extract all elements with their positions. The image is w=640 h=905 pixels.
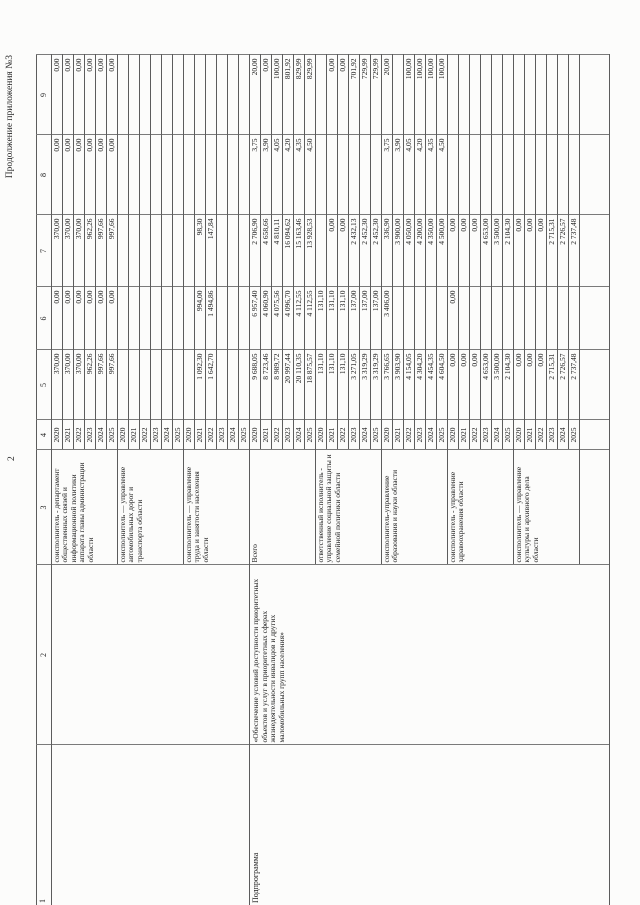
value-cell: 3,75: [250, 135, 261, 215]
value-cell: [316, 135, 327, 215]
value-cell: 0,00: [107, 135, 118, 215]
value-cell: 0,00: [63, 55, 74, 135]
year-cell: 2022: [206, 420, 217, 450]
year-cell: 2024: [426, 420, 437, 450]
budget-table: 123456789соисполнитель - департамент общ…: [36, 55, 610, 905]
value-cell: [503, 135, 514, 215]
column-number-cell: 6: [37, 287, 52, 350]
value-cell: 3 766,65: [382, 350, 393, 420]
value-cell: 0,00: [85, 287, 96, 350]
value-cell: 0,00: [514, 215, 525, 287]
year-row: соисполнитель - департамент общественных…: [52, 55, 63, 905]
value-cell: 4,20: [283, 135, 294, 215]
value-cell: [217, 55, 228, 135]
value-cell: [514, 135, 525, 215]
value-cell: 131,10: [338, 350, 349, 420]
value-cell: 997,66: [96, 215, 107, 287]
value-cell: 0,00: [96, 287, 107, 350]
year-cell: 2023: [85, 420, 96, 450]
value-cell: 829,99: [305, 55, 316, 135]
value-cell: [118, 350, 129, 420]
value-cell: [558, 135, 569, 215]
value-cell: 4 112,55: [294, 287, 305, 350]
value-cell: 962,26: [85, 350, 96, 420]
value-cell: 20,00: [382, 55, 393, 135]
year-cell: 2024: [162, 420, 173, 450]
value-cell: [140, 350, 151, 420]
year-cell: 2022: [404, 420, 415, 450]
value-cell: 0,00: [525, 350, 536, 420]
value-cell: [316, 55, 327, 135]
value-cell: [536, 287, 547, 350]
value-cell: 0,00: [96, 135, 107, 215]
value-cell: 3 319,29: [371, 350, 382, 420]
value-cell: [547, 135, 558, 215]
value-cell: 20,00: [250, 55, 261, 135]
value-cell: [492, 55, 503, 135]
year-cell: 2025: [503, 420, 514, 450]
value-cell: 3,75: [382, 135, 393, 215]
value-cell: 997,66: [96, 350, 107, 420]
value-cell: 336,90: [382, 215, 393, 287]
value-cell: [151, 215, 162, 287]
value-cell: [536, 55, 547, 135]
value-cell: 131,10: [316, 287, 327, 350]
value-cell: [151, 287, 162, 350]
value-cell: 3 319,29: [360, 350, 371, 420]
value-cell: 962,26: [85, 215, 96, 287]
value-cell: [195, 55, 206, 135]
value-cell: 0,00: [327, 55, 338, 135]
year-cell: 2023: [349, 420, 360, 450]
value-cell: 2 726,57: [558, 350, 569, 420]
value-cell: 0,00: [107, 287, 118, 350]
value-cell: [173, 215, 184, 287]
value-cell: [129, 215, 140, 287]
value-cell: 801,92: [283, 55, 294, 135]
value-cell: [140, 55, 151, 135]
value-cell: [536, 135, 547, 215]
value-cell: 4 075,56: [272, 287, 283, 350]
value-cell: 0,00: [470, 215, 481, 287]
value-cell: [360, 135, 371, 215]
value-cell: 20 110,35: [294, 350, 305, 420]
program-name-cell: «Обеспечение условий доступности приорит…: [250, 565, 610, 745]
value-cell: [470, 287, 481, 350]
year-cell: 2025: [437, 420, 448, 450]
value-cell: [173, 287, 184, 350]
year-cell: 2025: [371, 420, 382, 450]
value-cell: 8 723,46: [261, 350, 272, 420]
executor-cell: соисполнитель — управление труда и занят…: [184, 450, 250, 565]
value-cell: 0,00: [327, 215, 338, 287]
value-cell: 4 810,11: [272, 215, 283, 287]
value-cell: 0,00: [52, 287, 63, 350]
value-cell: [228, 215, 239, 287]
row-type-cell: Подпрограмма: [250, 745, 610, 905]
value-cell: 13 928,53: [305, 215, 316, 287]
value-cell: [184, 135, 195, 215]
value-cell: 0,00: [448, 287, 459, 350]
value-cell: [580, 287, 610, 350]
value-cell: [525, 135, 536, 215]
value-cell: 2 432,13: [349, 215, 360, 287]
value-cell: 370,00: [74, 350, 85, 420]
value-cell: [228, 135, 239, 215]
value-cell: [184, 215, 195, 287]
executor-cell: соисполнитель - департамент общественных…: [52, 450, 118, 565]
value-cell: 2 715,31: [547, 215, 558, 287]
value-cell: 100,00: [404, 55, 415, 135]
value-cell: [580, 215, 610, 287]
value-cell: 2 452,30: [360, 215, 371, 287]
column-number-cell: 8: [37, 135, 52, 215]
value-cell: 2 104,30: [503, 215, 514, 287]
value-cell: 2 452,30: [371, 215, 382, 287]
value-cell: [316, 215, 327, 287]
value-cell: 370,00: [74, 215, 85, 287]
value-cell: [503, 287, 514, 350]
value-cell: 3,90: [393, 135, 404, 215]
value-cell: 2 737,48: [569, 215, 580, 287]
executor-cell: соисполнитель — управление культуры и ар…: [514, 450, 580, 565]
value-cell: 4 050,00: [404, 215, 415, 287]
year-cell: 2023: [481, 420, 492, 450]
year-cell: 2024: [360, 420, 371, 450]
value-cell: [239, 215, 250, 287]
landscape-sheet: Продолжение приложения №3 2 123456789сои…: [0, 0, 640, 905]
value-cell: [525, 55, 536, 135]
value-cell: 6 957,40: [250, 287, 261, 350]
value-cell: 4 500,00: [437, 215, 448, 287]
value-cell: 0,00: [459, 350, 470, 420]
year-cell: 2025: [305, 420, 316, 450]
value-cell: [492, 287, 503, 350]
value-cell: 997,66: [107, 215, 118, 287]
value-cell: 0,00: [338, 215, 349, 287]
year-cell: 2021: [525, 420, 536, 450]
value-cell: [580, 55, 610, 135]
value-cell: 0,00: [85, 135, 96, 215]
year-cell: 2022: [74, 420, 85, 450]
value-cell: [481, 135, 492, 215]
scanned-page: Продолжение приложения №3 2 123456789сои…: [0, 0, 640, 905]
year-cell: 2023: [217, 420, 228, 450]
value-cell: 9 688,05: [250, 350, 261, 420]
year-cell: 2024: [228, 420, 239, 450]
value-cell: [173, 55, 184, 135]
value-cell: [217, 350, 228, 420]
value-cell: [217, 215, 228, 287]
value-cell: [118, 215, 129, 287]
value-cell: [239, 287, 250, 350]
value-cell: [558, 287, 569, 350]
value-cell: [151, 350, 162, 420]
value-cell: [228, 287, 239, 350]
value-cell: [239, 135, 250, 215]
column-number-cell: 9: [37, 55, 52, 135]
value-cell: 0,00: [52, 55, 63, 135]
value-cell: 370,00: [52, 350, 63, 420]
value-cell: 4 658,66: [261, 215, 272, 287]
value-cell: [173, 135, 184, 215]
year-cell: 2020: [52, 420, 63, 450]
value-cell: [162, 215, 173, 287]
year-cell: 2025: [569, 420, 580, 450]
year-cell: 2021: [261, 420, 272, 450]
value-cell: 370,00: [63, 215, 74, 287]
row-type-cell: [52, 745, 250, 905]
value-cell: 4,05: [272, 135, 283, 215]
value-cell: [129, 287, 140, 350]
value-cell: [140, 287, 151, 350]
year-cell: 2021: [129, 420, 140, 450]
value-cell: [558, 55, 569, 135]
value-cell: [118, 287, 129, 350]
value-cell: [327, 135, 338, 215]
year-cell: 2025: [173, 420, 184, 450]
value-cell: 137,00: [360, 287, 371, 350]
value-cell: 2 715,31: [547, 350, 558, 420]
budget-table-body: 123456789соисполнитель - департамент общ…: [37, 55, 610, 905]
value-cell: 0,00: [525, 215, 536, 287]
year-cell: 2020: [250, 420, 261, 450]
value-cell: 16 094,62: [283, 215, 294, 287]
value-cell: 4 304,20: [415, 350, 426, 420]
value-cell: [371, 135, 382, 215]
column-numbers-row: 123456789: [37, 55, 52, 905]
value-cell: 1 092,30: [195, 350, 206, 420]
value-cell: [459, 135, 470, 215]
value-cell: 15 163,46: [294, 215, 305, 287]
value-cell: 4,35: [294, 135, 305, 215]
value-cell: [547, 287, 558, 350]
year-cell: 2022: [272, 420, 283, 450]
value-cell: 131,10: [327, 350, 338, 420]
value-cell: 4,20: [415, 135, 426, 215]
value-cell: 4 060,90: [261, 287, 272, 350]
value-cell: [206, 55, 217, 135]
year-cell: 2020: [448, 420, 459, 450]
value-cell: [129, 350, 140, 420]
executor-cell: соисполнитель-управление образования и н…: [382, 450, 448, 565]
year-cell: 2021: [195, 420, 206, 450]
value-cell: [580, 350, 610, 420]
value-cell: [393, 55, 404, 135]
value-cell: [239, 55, 250, 135]
value-cell: 370,00: [63, 350, 74, 420]
value-cell: [481, 287, 492, 350]
value-cell: [129, 55, 140, 135]
value-cell: [459, 55, 470, 135]
value-cell: 4 200,00: [415, 215, 426, 287]
value-cell: [459, 287, 470, 350]
value-cell: [239, 350, 250, 420]
value-cell: [470, 135, 481, 215]
value-cell: 994,00: [195, 287, 206, 350]
value-cell: 4,50: [437, 135, 448, 215]
year-cell: 2025: [107, 420, 118, 450]
value-cell: 2 737,48: [569, 350, 580, 420]
column-number-cell: 5: [37, 350, 52, 420]
continuation-note: Продолжение приложения №3: [5, 55, 15, 245]
value-cell: [140, 135, 151, 215]
value-cell: 4 350,00: [426, 215, 437, 287]
value-cell: 0,00: [74, 135, 85, 215]
year-cell: 2024: [294, 420, 305, 450]
year-cell: 2020: [514, 420, 525, 450]
year-cell: 2021: [63, 420, 74, 450]
value-cell: 4,05: [404, 135, 415, 215]
value-cell: [162, 287, 173, 350]
value-cell: [514, 287, 525, 350]
column-number-cell: 7: [37, 215, 52, 287]
value-cell: 20 997,44: [283, 350, 294, 420]
value-cell: 4,35: [426, 135, 437, 215]
value-cell: [151, 55, 162, 135]
value-cell: 3 903,90: [393, 350, 404, 420]
value-cell: [184, 287, 195, 350]
year-cell: 2023: [415, 420, 426, 450]
executor-cell: ответственный исполнитель - управление с…: [316, 450, 382, 565]
year-cell: 2022: [140, 420, 151, 450]
value-cell: [580, 135, 610, 215]
value-cell: [426, 287, 437, 350]
year-cell: 2023: [283, 420, 294, 450]
value-cell: 8 989,72: [272, 350, 283, 420]
column-number-cell: 4: [37, 420, 52, 450]
value-cell: 0,00: [470, 350, 481, 420]
page-number: 2: [7, 456, 17, 461]
value-cell: [481, 55, 492, 135]
column-number-cell: 1: [37, 745, 52, 905]
executor-cell: Всего: [250, 450, 316, 565]
value-cell: [140, 215, 151, 287]
year-cell: 2024: [96, 420, 107, 450]
value-cell: [217, 287, 228, 350]
value-cell: 701,92: [349, 55, 360, 135]
value-cell: [393, 287, 404, 350]
value-cell: 0,00: [63, 287, 74, 350]
value-cell: 3 500,00: [492, 350, 503, 420]
value-cell: 0,00: [536, 215, 547, 287]
value-cell: 0,00: [448, 350, 459, 420]
value-cell: 100,00: [272, 55, 283, 135]
value-cell: 0,00: [261, 55, 272, 135]
value-cell: 3 900,00: [393, 215, 404, 287]
year-cell: 2020: [118, 420, 129, 450]
value-cell: 729,99: [371, 55, 382, 135]
value-cell: [162, 350, 173, 420]
value-cell: 729,99: [360, 55, 371, 135]
value-cell: 4 454,35: [426, 350, 437, 420]
value-cell: 0,00: [74, 287, 85, 350]
value-cell: 2 104,30: [503, 350, 514, 420]
value-cell: 829,99: [294, 55, 305, 135]
value-cell: 1 642,70: [206, 350, 217, 420]
value-cell: [173, 350, 184, 420]
value-cell: [162, 135, 173, 215]
value-cell: 0,00: [514, 350, 525, 420]
value-cell: [525, 287, 536, 350]
value-cell: [195, 135, 206, 215]
value-cell: 3 500,00: [492, 215, 503, 287]
value-cell: [151, 135, 162, 215]
value-cell: [503, 55, 514, 135]
year-cell: 2021: [327, 420, 338, 450]
value-cell: 100,00: [426, 55, 437, 135]
value-cell: 2 706,90: [250, 215, 261, 287]
value-cell: 3,90: [261, 135, 272, 215]
column-number-cell: 2: [37, 565, 52, 745]
value-cell: 98,30: [195, 215, 206, 287]
value-cell: [569, 287, 580, 350]
executor-cell: соисполнитель - управление здравоохранен…: [448, 450, 514, 565]
value-cell: 0,00: [107, 55, 118, 135]
value-cell: [415, 287, 426, 350]
value-cell: 2 726,57: [558, 215, 569, 287]
value-cell: [217, 135, 228, 215]
value-cell: 147,84: [206, 215, 217, 287]
value-cell: [228, 55, 239, 135]
value-cell: 4 096,70: [283, 287, 294, 350]
year-cell: 2021: [459, 420, 470, 450]
value-cell: 370,00: [52, 215, 63, 287]
value-cell: [569, 135, 580, 215]
year-cell: 2022: [536, 420, 547, 450]
value-cell: 3 406,00: [382, 287, 393, 350]
value-cell: 0,00: [85, 55, 96, 135]
executor-cell: [580, 450, 610, 565]
value-cell: 0,00: [52, 135, 63, 215]
value-cell: 4 604,50: [437, 350, 448, 420]
value-cell: [547, 55, 558, 135]
value-cell: 18 875,57: [305, 350, 316, 420]
value-cell: [206, 135, 217, 215]
value-cell: 4 154,05: [404, 350, 415, 420]
value-cell: [470, 55, 481, 135]
value-cell: 131,10: [316, 350, 327, 420]
year-cell: 2020: [316, 420, 327, 450]
value-cell: 0,00: [63, 135, 74, 215]
year-cell: [580, 420, 610, 450]
value-cell: [437, 287, 448, 350]
value-cell: 137,00: [371, 287, 382, 350]
year-cell: 2022: [338, 420, 349, 450]
value-cell: 3 271,05: [349, 350, 360, 420]
value-cell: 0,00: [74, 55, 85, 135]
value-cell: [569, 55, 580, 135]
value-cell: 0,00: [459, 215, 470, 287]
value-cell: [228, 350, 239, 420]
executor-cell: соисполнитель — управление автомобильных…: [118, 450, 184, 565]
year-cell: 2024: [492, 420, 503, 450]
value-cell: 4 653,00: [481, 350, 492, 420]
value-cell: 1 494,86: [206, 287, 217, 350]
value-cell: [118, 135, 129, 215]
year-row: Подпрограмма«Обеспечение условий доступн…: [250, 55, 261, 905]
value-cell: [404, 287, 415, 350]
value-cell: 0,00: [338, 55, 349, 135]
value-cell: [118, 55, 129, 135]
year-cell: 2020: [184, 420, 195, 450]
year-cell: 2021: [393, 420, 404, 450]
year-cell: 2020: [382, 420, 393, 450]
value-cell: [448, 135, 459, 215]
value-cell: 100,00: [437, 55, 448, 135]
value-cell: [349, 135, 360, 215]
value-cell: [492, 135, 503, 215]
